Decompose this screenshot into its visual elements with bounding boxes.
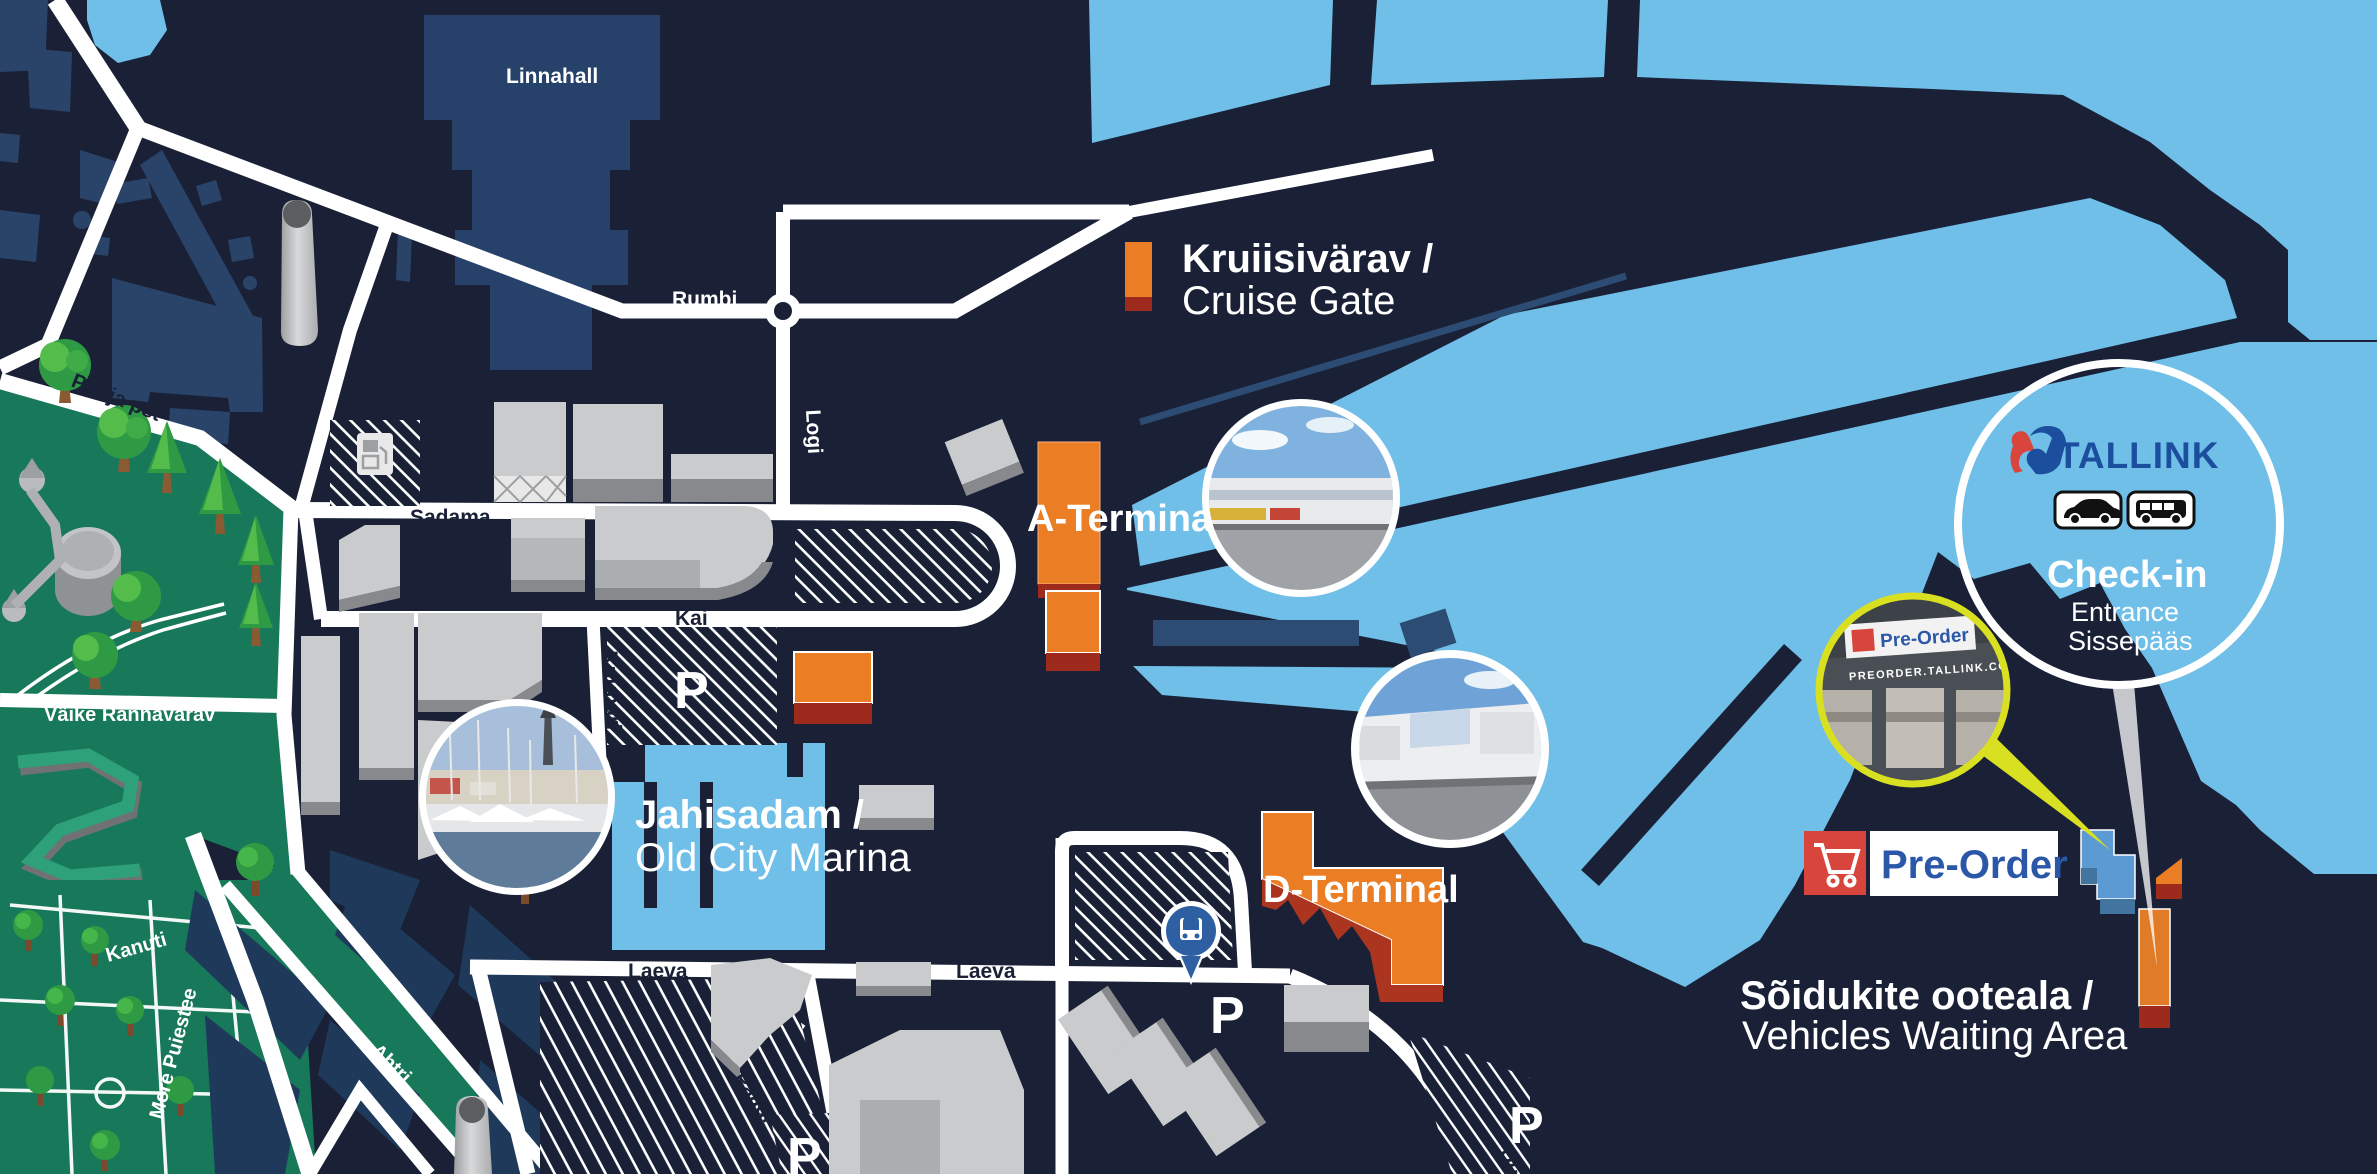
svg-text:Sõidukite ooteala /: Sõidukite ooteala / — [1740, 974, 2093, 1018]
svg-text:Lo: Lo — [1065, 1124, 1089, 1151]
svg-text:Kruiisivärav /: Kruiisivärav / — [1182, 237, 1433, 281]
svg-text:Kuunari: Kuunari — [598, 650, 625, 730]
svg-text:P: P — [1210, 987, 1245, 1045]
svg-text:P: P — [787, 1128, 822, 1174]
svg-text:Kai: Kai — [675, 607, 708, 630]
svg-text:Laeva: Laeva — [956, 960, 1016, 983]
svg-text:Sadama: Sadama — [410, 506, 491, 529]
svg-text:D-Terminal: D-Terminal — [1263, 869, 1459, 911]
svg-text:Old City Marina: Old City Marina — [635, 836, 911, 880]
svg-text:Laeva: Laeva — [628, 960, 688, 983]
svg-text:Vehicles Waiting Area: Vehicles Waiting Area — [1742, 1014, 2128, 1058]
svg-text:A-Terminal: A-Terminal — [1027, 498, 1223, 540]
svg-text:Jahisadam /: Jahisadam / — [635, 793, 864, 837]
svg-text:Logi: Logi — [801, 409, 826, 454]
svg-text:Sissepääs: Sissepääs — [2068, 626, 2193, 656]
svg-text:P: P — [674, 662, 709, 720]
svg-text:Cruise Gate: Cruise Gate — [1182, 279, 1395, 323]
svg-text:Pre-Order: Pre-Order — [1881, 843, 2068, 887]
svg-text:Entrance: Entrance — [2071, 597, 2179, 627]
svg-text:Rumbi: Rumbi — [672, 288, 737, 311]
svg-text:P: P — [1509, 1097, 1544, 1155]
svg-text:TALLINK: TALLINK — [2057, 435, 2220, 476]
svg-text:Väike Rannavärav: Väike Rannavärav — [44, 704, 216, 726]
svg-text:Linnahall: Linnahall — [506, 65, 598, 88]
svg-text:Check-in: Check-in — [2047, 554, 2207, 596]
